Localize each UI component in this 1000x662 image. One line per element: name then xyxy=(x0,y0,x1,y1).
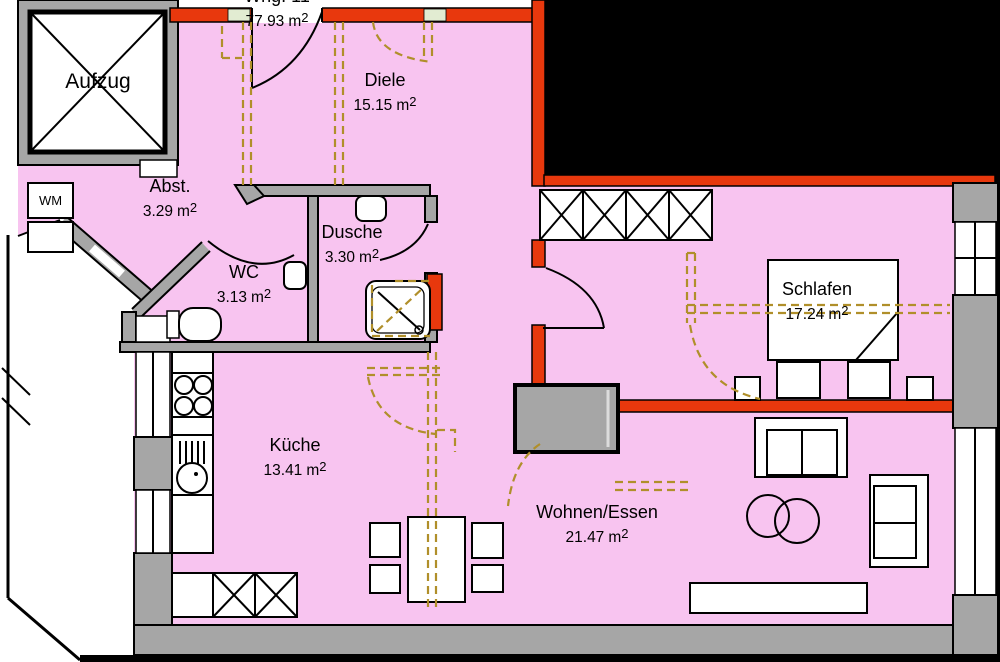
room-name: Dusche xyxy=(302,222,402,242)
room-label-abst: Abst. 3.29m2 xyxy=(120,176,220,222)
chair xyxy=(370,523,400,557)
room-area: 3.13m2 xyxy=(194,282,294,308)
room-label-whg: Whg. 11 77.93m2 xyxy=(217,0,337,32)
room-area: 15.15m2 xyxy=(335,90,435,116)
room-name: Abst. xyxy=(120,176,220,196)
wall-schlafen-north xyxy=(544,175,995,186)
room-area: 77.93m2 xyxy=(217,6,337,32)
window-sill xyxy=(424,9,446,21)
floor-plan-drawing xyxy=(0,0,1000,662)
wall-diele-east xyxy=(532,0,545,186)
sideboard xyxy=(690,583,867,613)
room-name: Diele xyxy=(335,70,435,90)
room-name: Wohnen/Essen xyxy=(512,502,682,522)
bed-bench xyxy=(777,362,820,398)
chair xyxy=(472,523,503,558)
floor-plan: Whg. 11 77.93m2 Diele 15.15m2 Abst. 3.29… xyxy=(0,0,1000,662)
toilet xyxy=(179,308,221,341)
toilet-tank xyxy=(167,311,179,338)
elevator-label: Aufzug xyxy=(48,68,148,96)
wardrobe xyxy=(540,190,712,240)
chimney-block xyxy=(515,385,618,452)
room-label-wohnen: Wohnen/Essen 21.47m2 xyxy=(512,502,682,548)
room-area: 21.47m2 xyxy=(512,522,682,548)
room-area: 3.29m2 xyxy=(120,196,220,222)
room-label-diele: Diele 15.15m2 xyxy=(335,70,435,116)
bed-bench xyxy=(848,362,890,398)
room-area: 13.41m2 xyxy=(245,455,345,481)
room-label-wc: WC 3.13m2 xyxy=(194,262,294,308)
room-name: Schlafen xyxy=(742,279,892,299)
room-area: 3.30m2 xyxy=(302,242,402,268)
nightstand xyxy=(907,377,933,400)
wall-schlafen-south xyxy=(618,400,953,412)
elevator-door xyxy=(140,160,177,177)
bottom-wall xyxy=(134,625,995,655)
shower-washbasin xyxy=(356,196,386,221)
room-label-kueche: Küche 13.41m2 xyxy=(245,435,345,481)
chair xyxy=(472,565,503,592)
counter-box xyxy=(172,573,213,617)
appliance-box xyxy=(28,222,73,252)
room-area: 17.24m2 xyxy=(742,299,892,325)
chair xyxy=(370,565,400,593)
room-name: WC xyxy=(194,262,294,282)
room-label-schlafen: Schlafen 17.24m2 xyxy=(742,279,892,325)
room-label-dusche: Dusche 3.30m2 xyxy=(302,222,402,268)
washing-machine-label: WM xyxy=(28,183,73,218)
room-name: Küche xyxy=(245,435,345,455)
